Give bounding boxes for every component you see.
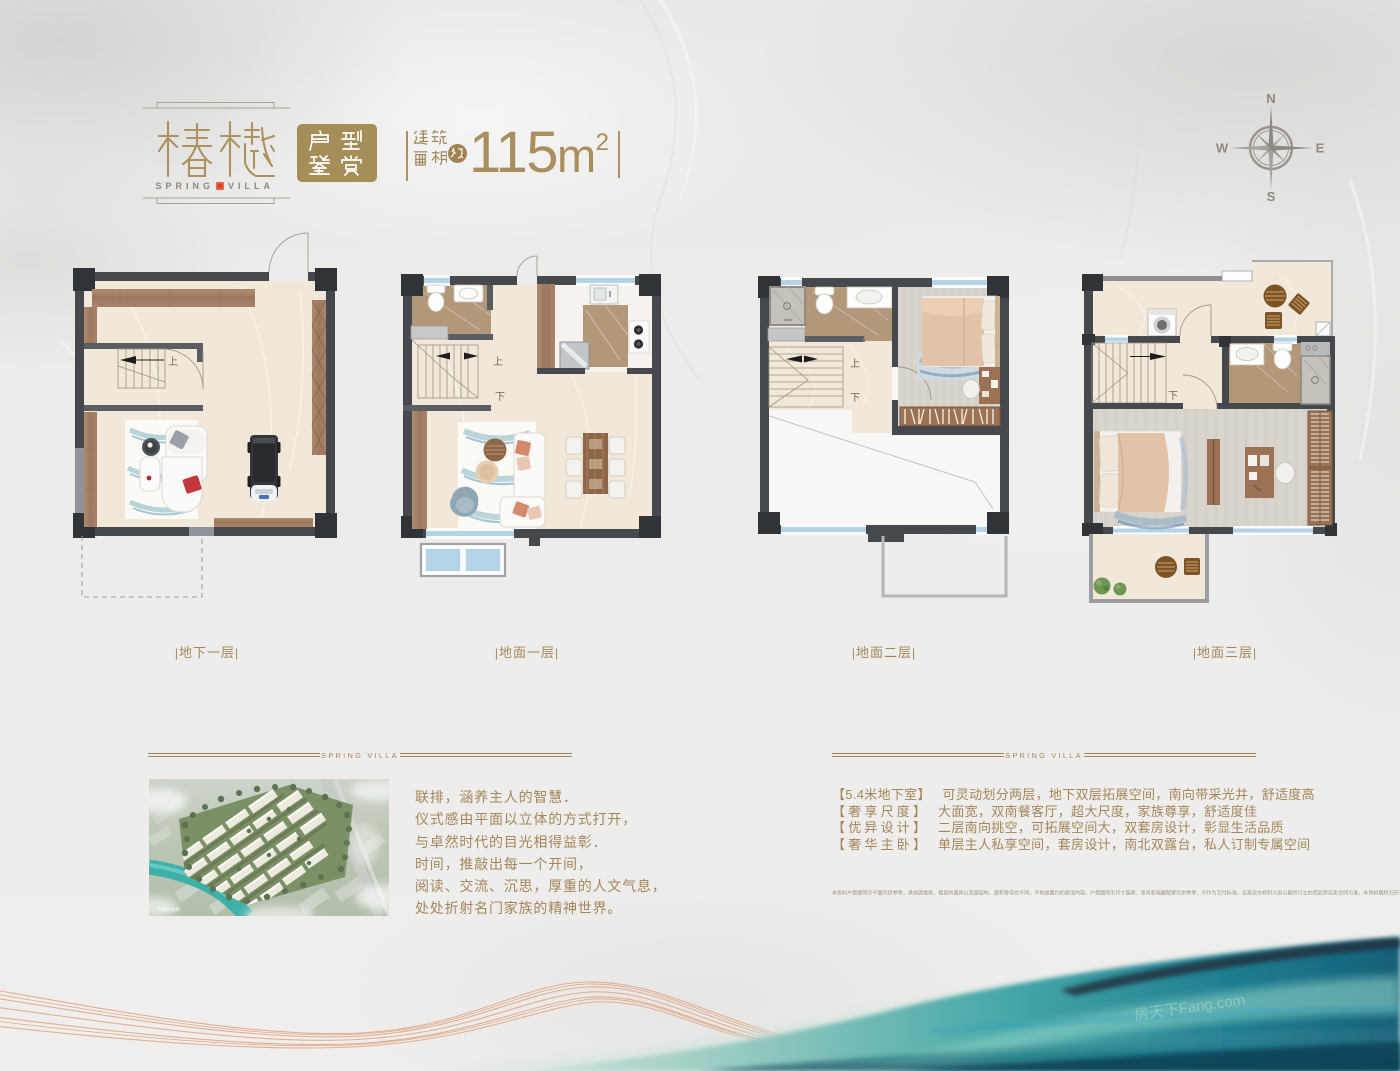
svg-text:SPRING VILLA: SPRING VILLA [1005, 751, 1083, 760]
svg-text:E: E [1316, 141, 1325, 156]
svg-text:鸟瞰效果图: 鸟瞰效果图 [157, 906, 180, 913]
svg-text:SPRING VILLA: SPRING VILLA [321, 751, 399, 760]
svg-text:上: 上 [493, 356, 503, 368]
svg-text:N: N [1266, 91, 1275, 106]
svg-text:下: 下 [850, 393, 860, 404]
svg-text:下: 下 [495, 392, 505, 403]
svg-text:S: S [1267, 189, 1276, 204]
svg-text:上: 上 [168, 356, 178, 368]
svg-text:W: W [1216, 141, 1229, 156]
svg-text:下: 下 [1168, 391, 1178, 402]
svg-text:上: 上 [850, 358, 860, 370]
